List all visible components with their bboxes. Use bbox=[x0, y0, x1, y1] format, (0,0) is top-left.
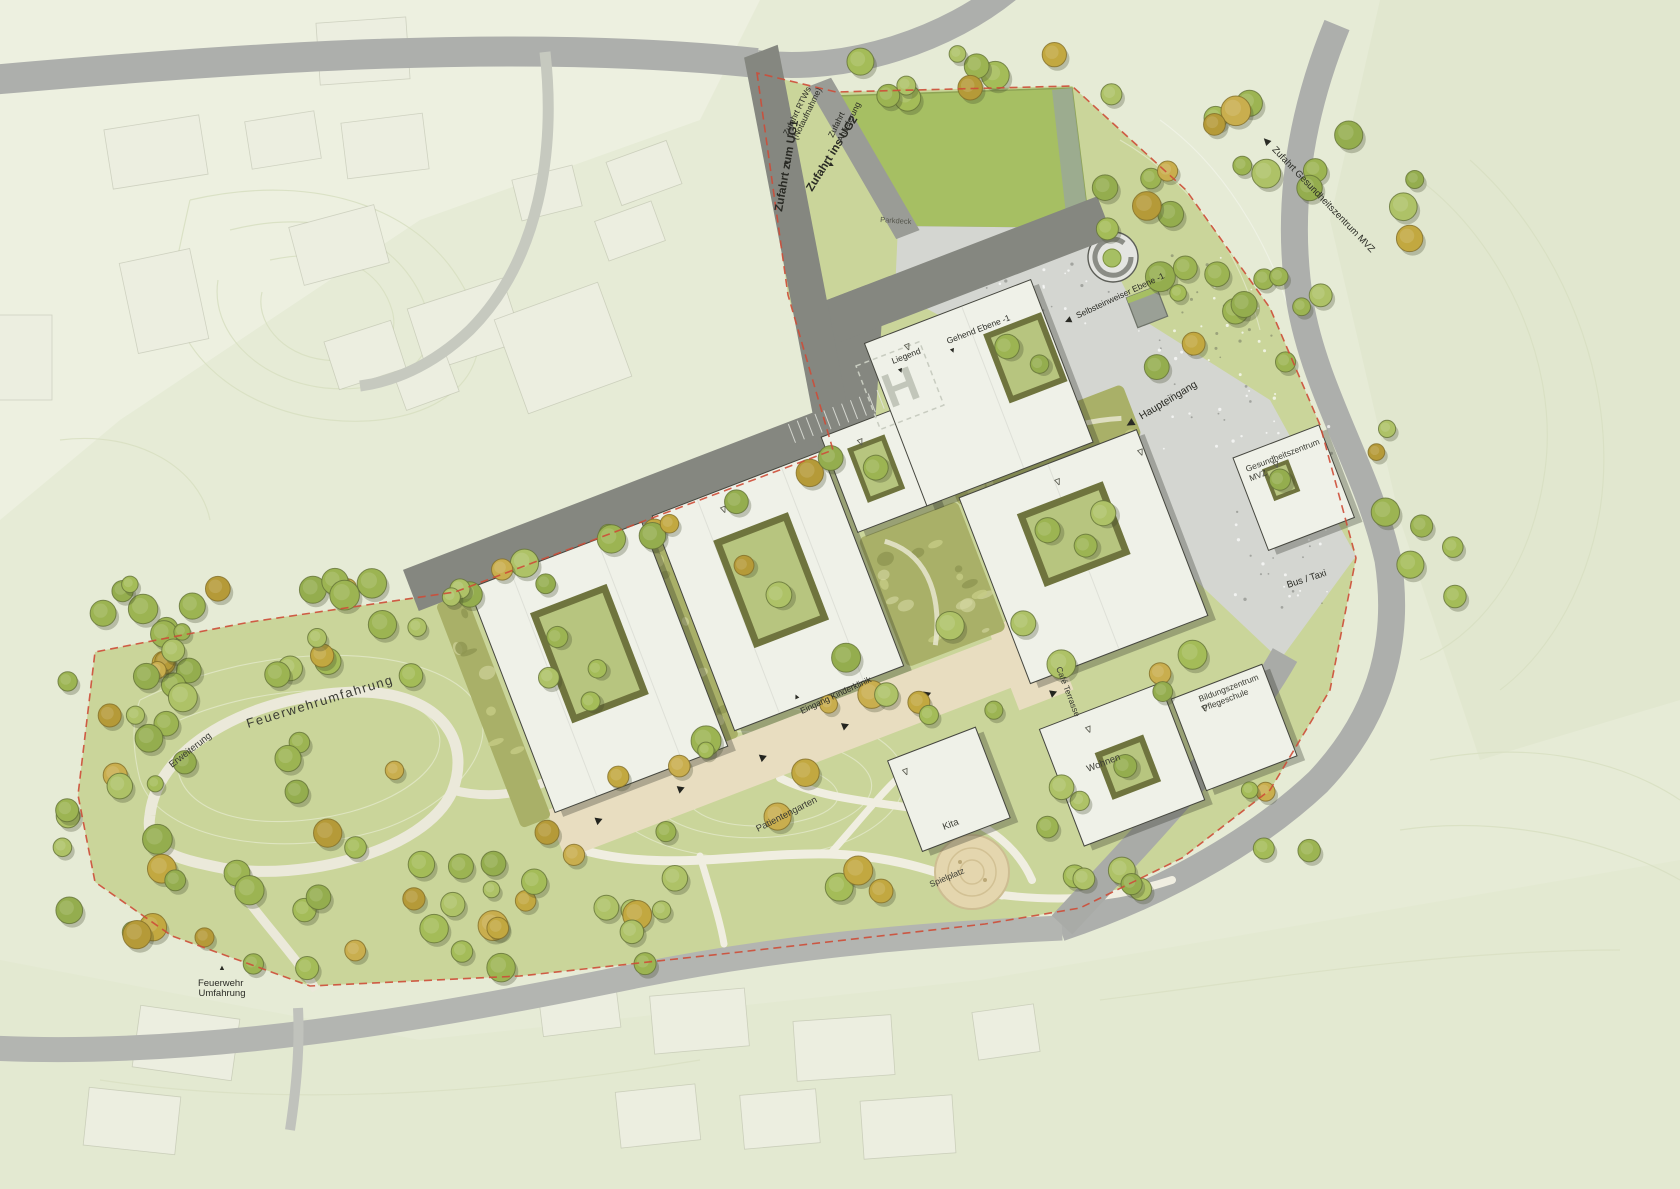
site-plan: H ∇ ∇ ∇ ∇ ∇ ∇ ∇ ∇ ∇ ∇ Zufa bbox=[0, 0, 1680, 1189]
arrow-feuerwehr-icon: ▲ bbox=[218, 963, 225, 972]
site-plan-canvas: H ∇ ∇ ∇ ∇ ∇ ∇ ∇ ∇ ∇ ∇ Zufa bbox=[0, 0, 1680, 1189]
label-feuerwehr-umfahrung: Feuerwehr Umfahrung bbox=[198, 978, 246, 999]
